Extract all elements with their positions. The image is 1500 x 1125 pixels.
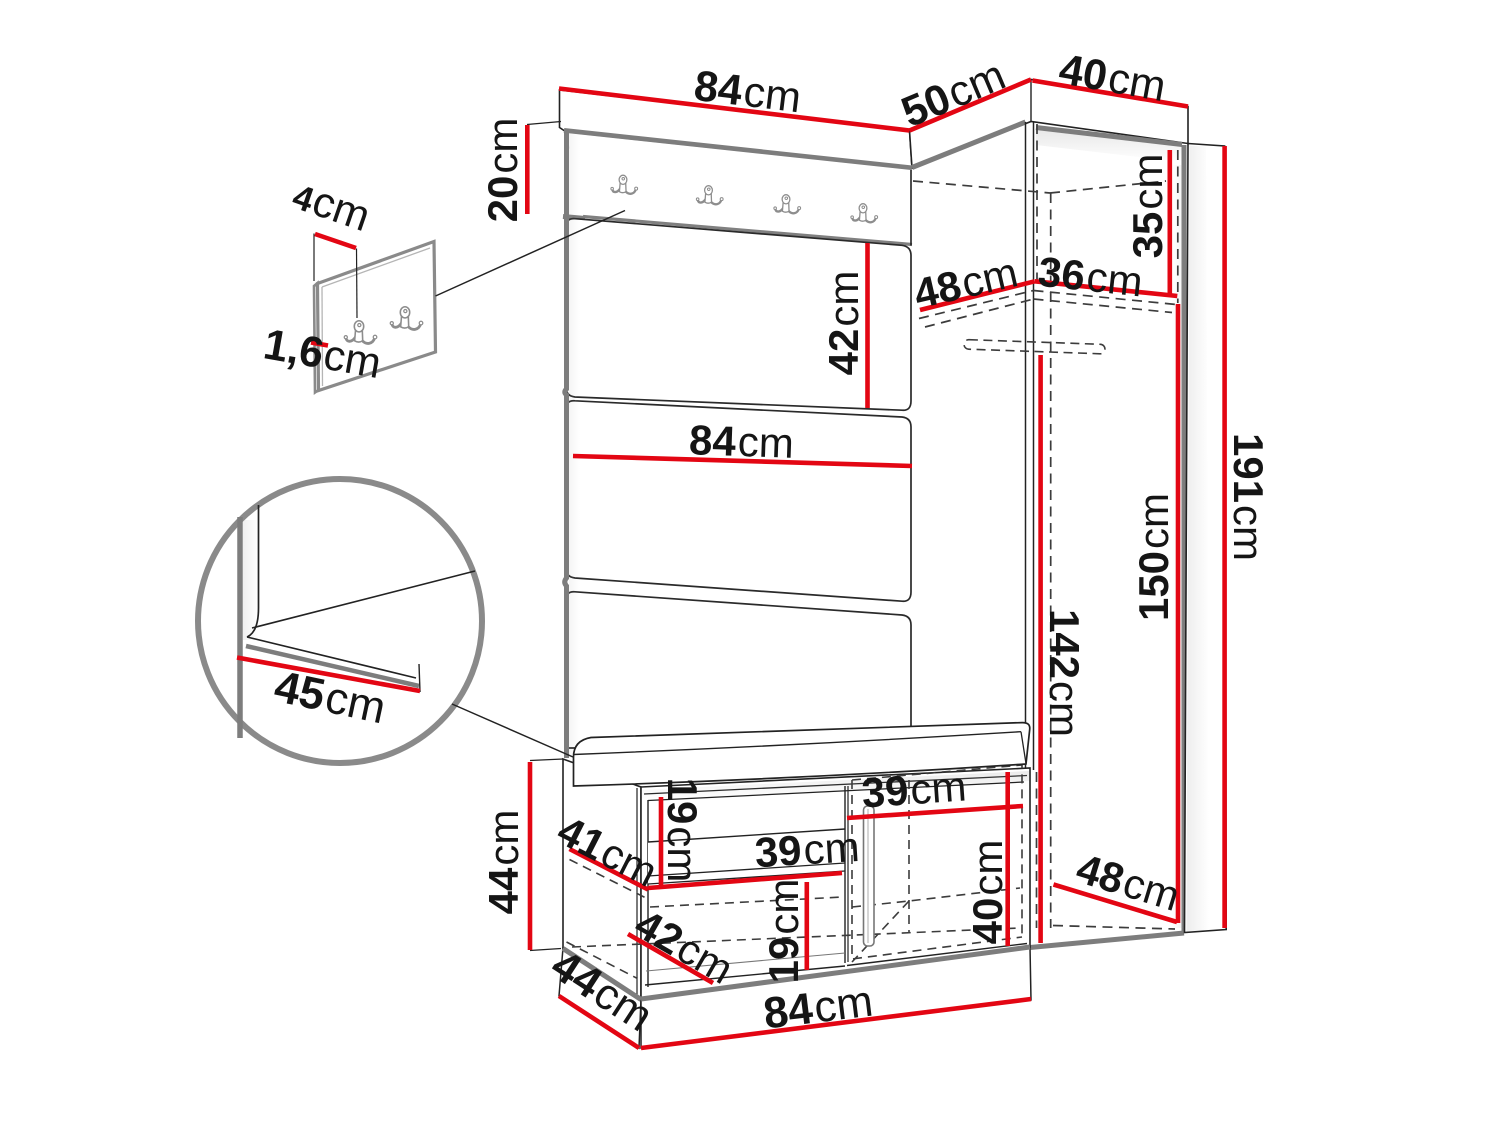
svg-text:39cm: 39cm xyxy=(753,823,860,876)
svg-text:150cm: 150cm xyxy=(1130,493,1177,621)
svg-text:39cm: 39cm xyxy=(860,762,968,816)
svg-text:20cm: 20cm xyxy=(479,118,526,223)
svg-text:35cm: 35cm xyxy=(1124,154,1171,259)
svg-text:42cm: 42cm xyxy=(820,271,867,376)
svg-text:191cm: 191cm xyxy=(1225,433,1272,561)
svg-text:44cm: 44cm xyxy=(480,810,527,915)
svg-text:19cm: 19cm xyxy=(760,879,807,984)
svg-text:84cm: 84cm xyxy=(688,416,794,467)
svg-text:19cm: 19cm xyxy=(659,778,706,883)
svg-text:142cm: 142cm xyxy=(1041,609,1088,737)
svg-text:40cm: 40cm xyxy=(964,840,1011,945)
